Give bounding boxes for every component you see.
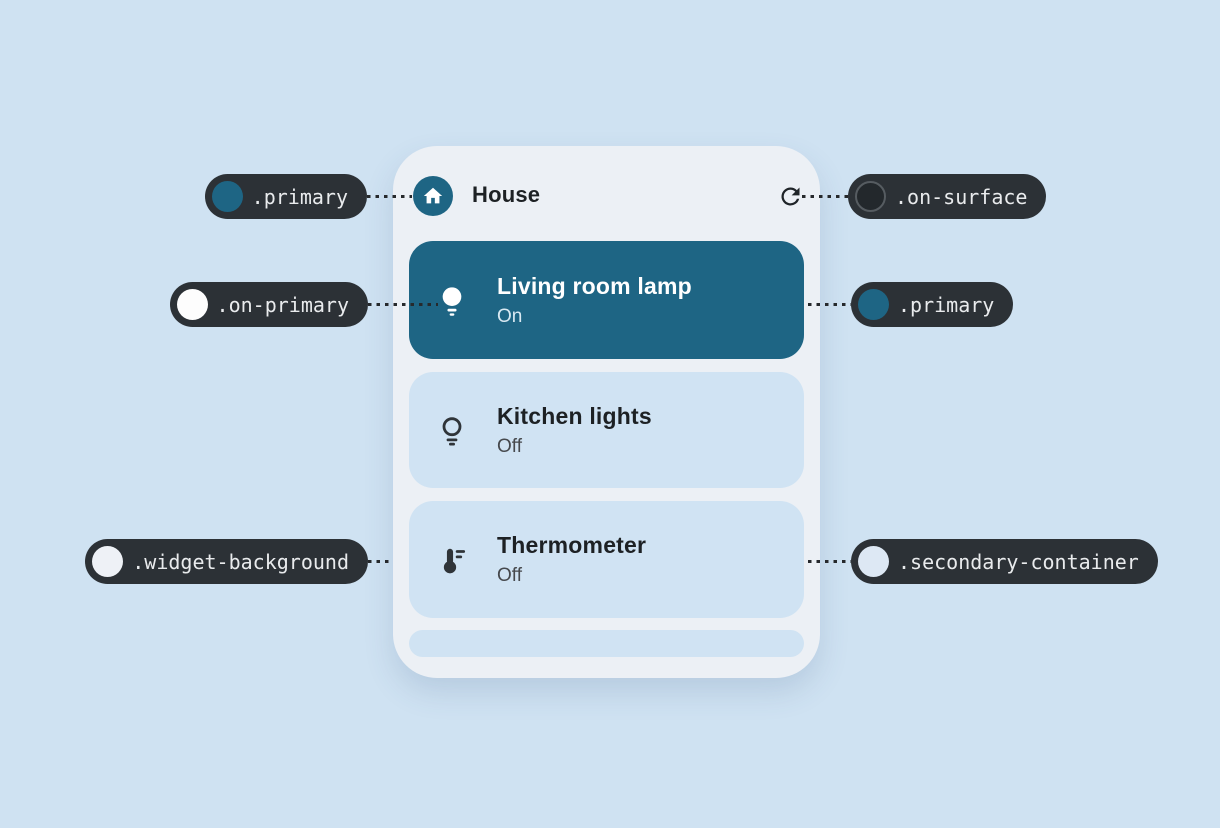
device-card-living-room-lamp[interactable]: Living room lamp On xyxy=(409,241,804,359)
annotation-label: .primary xyxy=(252,185,348,209)
annotation-pill-secondary-container: .secondary-container xyxy=(851,539,1158,584)
annotation-pill-on-primary: .on-primary xyxy=(170,282,368,327)
device-status: Off xyxy=(497,565,646,587)
device-card-kitchen-lights[interactable]: Kitchen lights Off xyxy=(409,372,804,488)
annotation-pill-primary-left: .primary xyxy=(205,174,367,219)
device-name: Living room lamp xyxy=(497,273,692,299)
lightbulb-filled-icon xyxy=(435,284,469,316)
device-status: Off xyxy=(497,436,652,458)
annotation-label: .primary xyxy=(898,293,994,317)
annotation-label: .on-surface xyxy=(895,185,1027,209)
color-swatch-primary xyxy=(858,289,889,320)
device-status: On xyxy=(497,306,692,328)
home-icon-button[interactable] xyxy=(413,176,453,216)
smart-home-widget: House Living room lamp On xyxy=(393,146,820,678)
device-card-thermometer[interactable]: Thermometer Off xyxy=(409,501,804,618)
refresh-button[interactable] xyxy=(776,182,804,210)
color-swatch-on-surface xyxy=(855,181,886,212)
connector-line-on-surface xyxy=(802,195,848,198)
color-swatch-on-primary xyxy=(177,289,208,320)
connector-line-secondary-container xyxy=(808,560,851,563)
connector-line-primary-right xyxy=(808,303,851,306)
connector-line-on-primary xyxy=(368,303,438,306)
lightbulb-outline-icon xyxy=(435,414,469,446)
annotation-pill-widget-background: .widget-background xyxy=(85,539,368,584)
color-swatch-secondary-container xyxy=(858,546,889,577)
device-name: Thermometer xyxy=(497,532,646,558)
connector-line-widget-background xyxy=(368,560,392,563)
thermometer-icon xyxy=(435,544,469,576)
annotation-label: .widget-background xyxy=(132,550,349,574)
refresh-icon xyxy=(777,183,804,210)
annotation-label: .on-primary xyxy=(217,293,349,317)
page-background: House Living room lamp On xyxy=(0,0,1220,828)
device-name: Kitchen lights xyxy=(497,403,652,429)
partial-device-card[interactable] xyxy=(409,630,804,657)
annotation-label: .secondary-container xyxy=(898,550,1139,574)
color-swatch-primary xyxy=(212,181,243,212)
connector-line-primary-left xyxy=(367,195,412,198)
annotation-pill-primary-right: .primary xyxy=(851,282,1013,327)
home-icon xyxy=(422,185,444,207)
widget-title: House xyxy=(472,179,540,211)
annotation-pill-on-surface: .on-surface xyxy=(848,174,1046,219)
color-swatch-widget-background xyxy=(92,546,123,577)
